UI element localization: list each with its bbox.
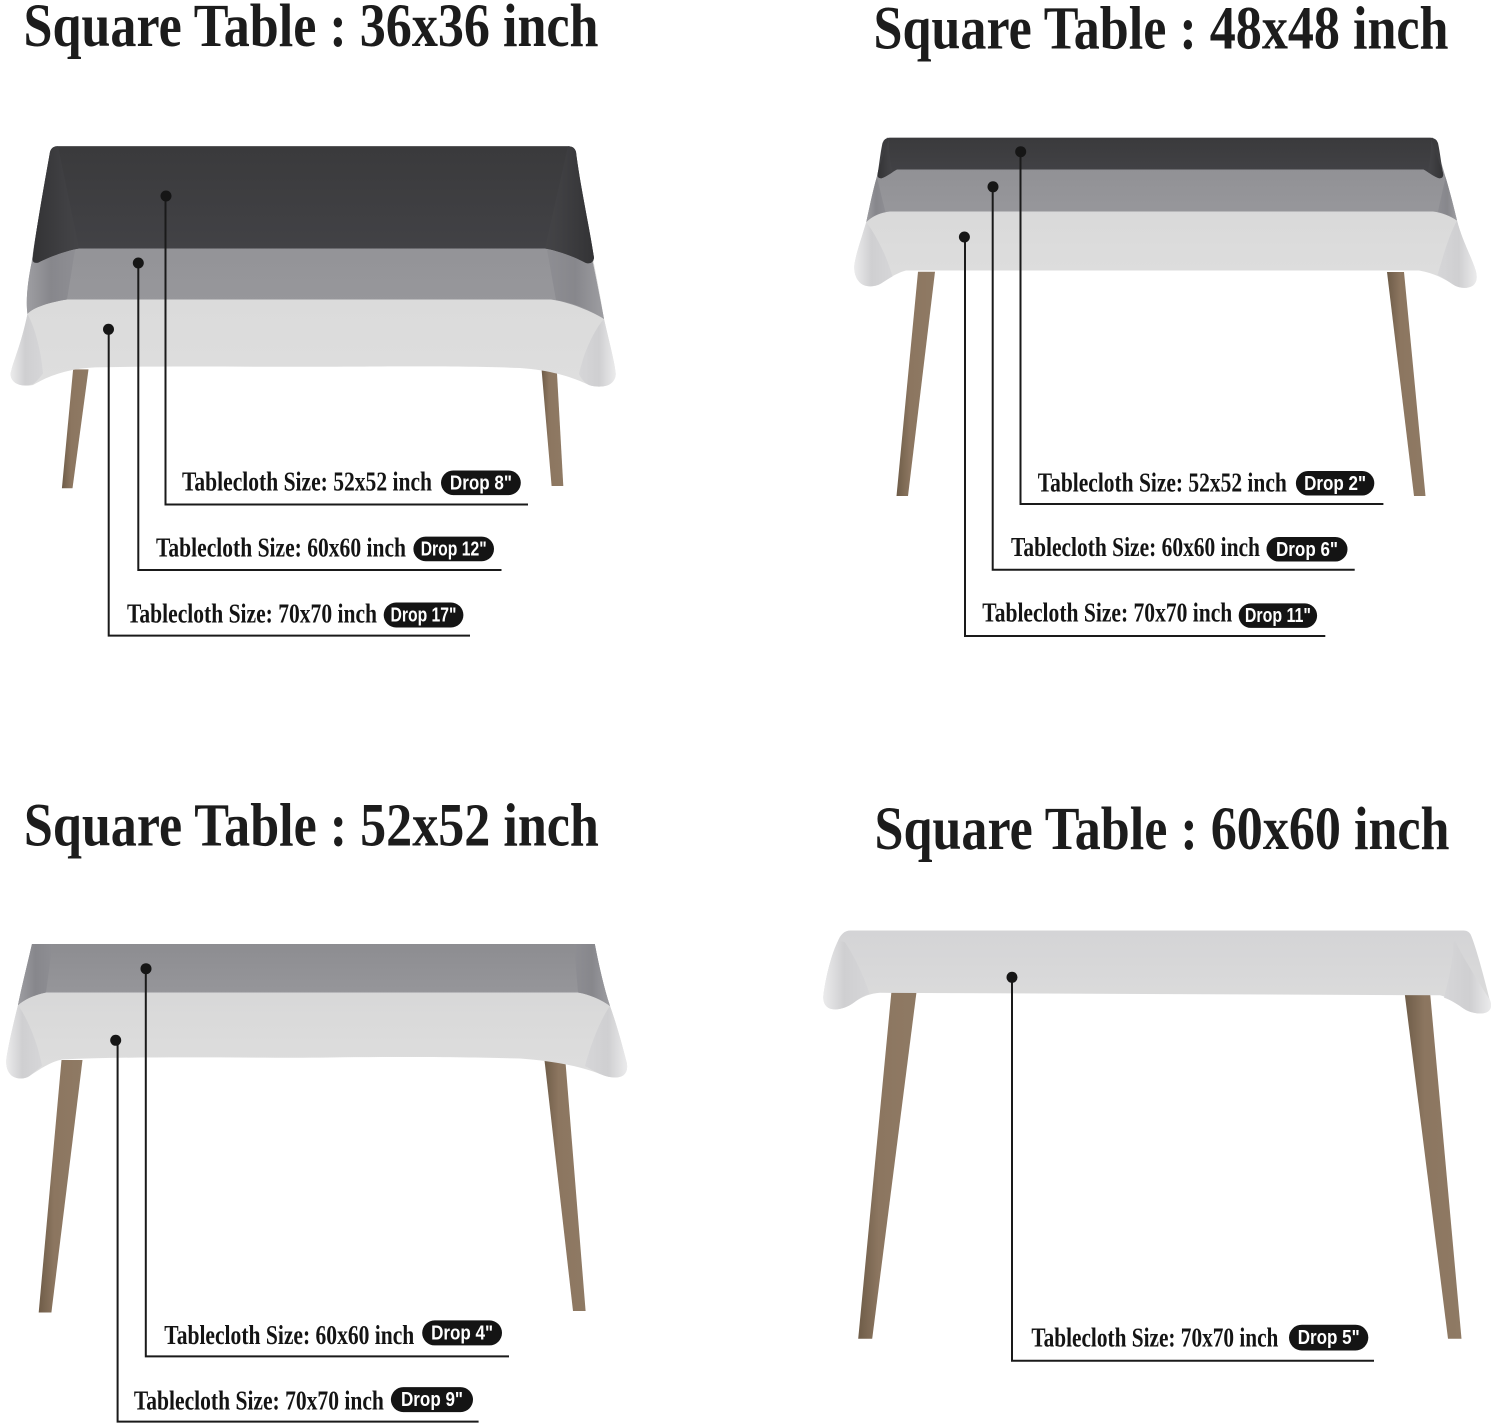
svg-text:Drop 12": Drop 12" [421,538,487,560]
svg-text:Tablecloth Size: 52x52 inch: Tablecloth Size: 52x52 inch [182,467,432,497]
svg-text:Square Table : 60x60 inch: Square Table : 60x60 inch [875,796,1450,863]
svg-text:Tablecloth Size: 70x70 inch: Tablecloth Size: 70x70 inch [127,598,377,628]
svg-text:Drop 4": Drop 4" [431,1322,493,1344]
svg-text:Tablecloth Size: 70x70 inch: Tablecloth Size: 70x70 inch [1031,1323,1278,1353]
svg-text:Tablecloth Size: 52x52 inch: Tablecloth Size: 52x52 inch [1038,468,1287,498]
svg-text:Drop 9": Drop 9" [401,1389,463,1411]
svg-text:Square Table : 36x36 inch: Square Table : 36x36 inch [24,0,599,60]
svg-text:Drop 2": Drop 2" [1304,473,1366,495]
svg-text:Drop 17": Drop 17" [391,605,457,627]
svg-text:Drop 11": Drop 11" [1245,605,1311,627]
svg-text:Tablecloth Size: 60x60 inch: Tablecloth Size: 60x60 inch [164,1320,414,1350]
svg-text:Drop 6": Drop 6" [1276,539,1338,561]
svg-text:Square Table : 48x48 inch: Square Table : 48x48 inch [874,0,1449,63]
svg-text:Tablecloth Size: 70x70 inch: Tablecloth Size: 70x70 inch [134,1386,384,1416]
svg-text:Drop 8": Drop 8" [450,472,512,494]
svg-text:Tablecloth Size: 60x60 inch: Tablecloth Size: 60x60 inch [156,533,406,563]
svg-text:Tablecloth Size: 70x70 inch: Tablecloth Size: 70x70 inch [982,597,1232,627]
svg-text:Drop 5": Drop 5" [1298,1327,1360,1349]
svg-text:Tablecloth Size: 60x60 inch: Tablecloth Size: 60x60 inch [1011,532,1260,562]
svg-text:Square Table : 52x52 inch: Square Table : 52x52 inch [24,793,599,860]
